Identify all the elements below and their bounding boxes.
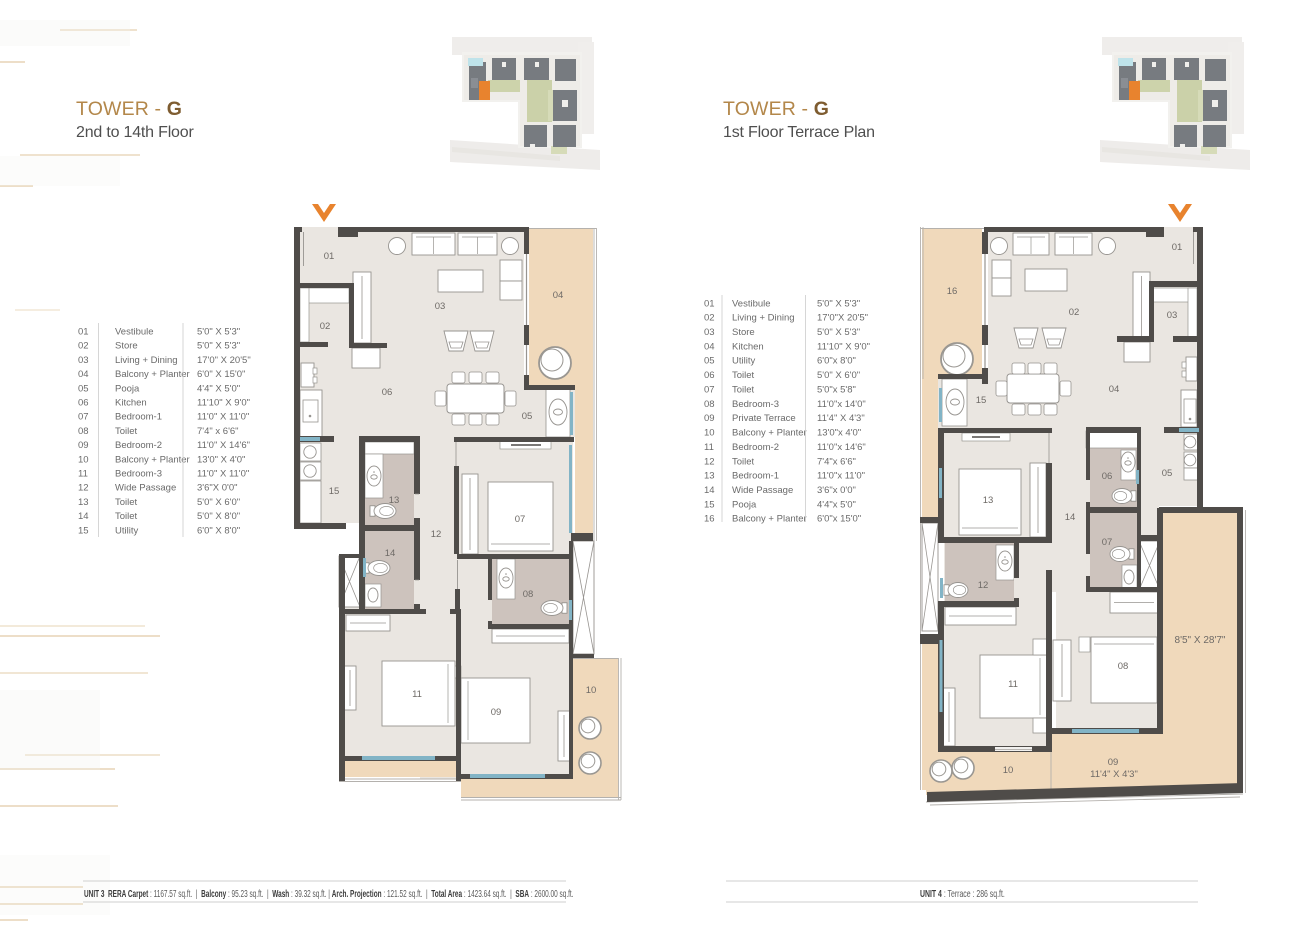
svg-text:14: 14 — [385, 548, 396, 559]
svg-text:07: 07 — [704, 384, 715, 395]
svg-text:Toilet: Toilet — [115, 511, 138, 522]
svg-text:11'0"x 14'0": 11'0"x 14'0" — [817, 399, 866, 410]
svg-text:Bedroom-2: Bedroom-2 — [115, 440, 162, 451]
svg-text:Bedroom-1: Bedroom-1 — [732, 471, 779, 482]
svg-text:16: 16 — [947, 286, 958, 297]
svg-text:06: 06 — [704, 370, 715, 381]
svg-text:01: 01 — [704, 298, 715, 309]
svg-text:Wide Passage: Wide Passage — [732, 485, 793, 496]
svg-text:05: 05 — [78, 383, 89, 394]
svg-text:11'4" X 4'3": 11'4" X 4'3" — [1090, 769, 1138, 780]
svg-text:15: 15 — [78, 525, 89, 536]
svg-text:UNIT 4 : Terrace : 286 sq.ft.: UNIT 4 : Terrace : 286 sq.ft. — [920, 888, 1005, 900]
svg-text:03: 03 — [704, 327, 715, 338]
svg-text:Store: Store — [732, 327, 755, 338]
svg-text:Pooja: Pooja — [115, 383, 140, 394]
svg-text:05: 05 — [522, 411, 533, 422]
svg-text:Pooja: Pooja — [732, 499, 757, 510]
svg-text:17'0"X 20'5": 17'0"X 20'5" — [817, 313, 868, 324]
svg-text:Bedroom-3: Bedroom-3 — [115, 469, 162, 480]
svg-text:13: 13 — [983, 495, 994, 506]
svg-text:Kitchen: Kitchen — [115, 398, 147, 409]
svg-text:2nd to 14th Floor: 2nd to 14th Floor — [76, 124, 194, 141]
svg-text:Toilet: Toilet — [732, 456, 755, 467]
svg-text:5'0" X 6'0": 5'0" X 6'0" — [197, 497, 240, 508]
svg-text:11: 11 — [412, 689, 422, 700]
svg-text:5'0" X 6'0": 5'0" X 6'0" — [817, 370, 860, 381]
svg-text:06: 06 — [1102, 471, 1113, 482]
svg-text:Balcony + Planter: Balcony + Planter — [115, 369, 190, 380]
svg-text:07: 07 — [78, 412, 89, 423]
svg-text:Utility: Utility — [115, 525, 138, 536]
svg-text:13: 13 — [704, 471, 715, 482]
svg-text:13: 13 — [389, 495, 400, 506]
svg-text:15: 15 — [976, 395, 987, 406]
svg-text:01: 01 — [1172, 242, 1183, 253]
svg-text:10: 10 — [704, 428, 715, 439]
svg-text:15: 15 — [704, 499, 715, 510]
svg-text:10: 10 — [586, 685, 597, 696]
svg-text:11'0"x 11'0": 11'0"x 11'0" — [817, 471, 865, 482]
svg-text:13'0"x 4'0": 13'0"x 4'0" — [817, 428, 861, 439]
svg-text:12: 12 — [431, 529, 442, 540]
svg-text:5'0" X 5'3": 5'0" X 5'3" — [197, 341, 240, 352]
svg-text:6'0"x 15'0": 6'0"x 15'0" — [817, 514, 861, 525]
svg-text:08: 08 — [523, 589, 534, 600]
svg-text:04: 04 — [78, 369, 89, 380]
svg-text:7'4" x 6'6": 7'4" x 6'6" — [197, 426, 239, 437]
svg-text:08: 08 — [704, 399, 715, 410]
svg-text:11'0"x 14'6": 11'0"x 14'6" — [817, 442, 866, 453]
svg-text:13'0" X 4'0": 13'0" X 4'0" — [197, 454, 245, 465]
svg-text:07: 07 — [1102, 537, 1113, 548]
svg-text:04: 04 — [553, 290, 564, 301]
svg-text:4'4" X 5'0": 4'4" X 5'0" — [197, 383, 240, 394]
svg-text:02: 02 — [78, 341, 89, 352]
svg-text:17'0" X 20'5": 17'0" X 20'5" — [197, 355, 251, 366]
svg-text:02: 02 — [1069, 307, 1080, 318]
svg-text:02: 02 — [704, 313, 715, 324]
svg-text:05: 05 — [704, 356, 715, 367]
svg-text:5'0" X 5'3": 5'0" X 5'3" — [817, 327, 860, 338]
svg-text:06: 06 — [78, 398, 89, 409]
svg-text:04: 04 — [704, 341, 715, 352]
svg-text:08: 08 — [78, 426, 89, 437]
svg-text:03: 03 — [435, 301, 446, 312]
svg-text:07: 07 — [515, 514, 526, 525]
svg-text:09: 09 — [1108, 757, 1119, 768]
svg-text:Balcony + Planter: Balcony + Planter — [732, 428, 807, 439]
svg-text:14: 14 — [1065, 512, 1076, 523]
svg-text:11'10" X 9'0": 11'10" X 9'0" — [197, 398, 250, 409]
svg-text:Toilet: Toilet — [732, 370, 755, 381]
svg-text:06: 06 — [382, 387, 393, 398]
svg-text:Balcony + Planter: Balcony + Planter — [732, 514, 807, 525]
svg-text:11: 11 — [1008, 679, 1018, 690]
svg-text:11'0" X 14'6": 11'0" X 14'6" — [197, 440, 250, 451]
svg-text:01: 01 — [78, 327, 89, 338]
svg-text:09: 09 — [78, 440, 89, 451]
svg-text:14: 14 — [78, 511, 89, 522]
svg-text:11: 11 — [704, 442, 714, 453]
svg-text:03: 03 — [78, 355, 89, 366]
svg-text:3'6"X 0'0": 3'6"X 0'0" — [197, 483, 237, 494]
svg-text:6'0" X 15'0": 6'0" X 15'0" — [197, 369, 245, 380]
svg-text:05: 05 — [1162, 468, 1173, 479]
svg-text:16: 16 — [704, 514, 715, 525]
svg-text:UNIT 3 RERA Carpet : 1167.57: UNIT 3 RERA Carpet : 1167.57 sq.ft. | Ba… — [84, 887, 573, 899]
svg-text:Kitchen: Kitchen — [732, 341, 764, 352]
svg-text:Vestibule: Vestibule — [115, 327, 154, 338]
svg-text:Private Terrace: Private Terrace — [732, 413, 796, 424]
svg-text:Toilet: Toilet — [115, 426, 138, 437]
svg-text:3'6"x 0'0": 3'6"x 0'0" — [817, 485, 856, 496]
svg-text:Bedroom-2: Bedroom-2 — [732, 442, 779, 453]
svg-text:6'0"x 8'0": 6'0"x 8'0" — [817, 356, 856, 367]
svg-text:12: 12 — [704, 456, 715, 467]
svg-text:12: 12 — [978, 580, 989, 591]
svg-text:5'0" X 8'0": 5'0" X 8'0" — [197, 511, 240, 522]
svg-text:11'4" X 4'3": 11'4" X 4'3" — [817, 413, 865, 424]
svg-text:12: 12 — [78, 483, 89, 494]
svg-text:11'0" X 11'0": 11'0" X 11'0" — [197, 412, 249, 423]
svg-text:Bedroom-1: Bedroom-1 — [115, 412, 162, 423]
svg-text:09: 09 — [491, 707, 502, 718]
svg-text:Toilet: Toilet — [732, 384, 755, 395]
svg-text:13: 13 — [78, 497, 89, 508]
svg-text:04: 04 — [1109, 384, 1120, 395]
svg-text:5'0"x 5'8": 5'0"x 5'8" — [817, 384, 856, 395]
svg-text:Store: Store — [115, 341, 138, 352]
svg-text:03: 03 — [1167, 310, 1178, 321]
svg-text:8'5" X 28'7": 8'5" X 28'7" — [1175, 635, 1226, 646]
svg-text:TOWER - G: TOWER - G — [76, 98, 182, 120]
svg-text:5'0" X 5'3": 5'0" X 5'3" — [197, 327, 240, 338]
svg-text:09: 09 — [704, 413, 715, 424]
svg-text:4'4"x 5'0": 4'4"x 5'0" — [817, 499, 856, 510]
svg-text:6'0" X 8'0": 6'0" X 8'0" — [197, 525, 240, 536]
svg-text:Utility: Utility — [732, 356, 755, 367]
svg-text:11'10" X 9'0": 11'10" X 9'0" — [817, 341, 870, 352]
svg-text:10: 10 — [1003, 765, 1014, 776]
svg-text:5'0" X 5'3": 5'0" X 5'3" — [817, 298, 860, 309]
svg-text:Living + Dining: Living + Dining — [115, 355, 178, 366]
svg-text:11'0" X 11'0": 11'0" X 11'0" — [197, 469, 249, 480]
svg-text:Living + Dining: Living + Dining — [732, 313, 795, 324]
svg-text:15: 15 — [329, 486, 340, 497]
svg-text:7'4"x 6'6": 7'4"x 6'6" — [817, 456, 856, 467]
svg-text:11: 11 — [78, 469, 88, 480]
svg-text:TOWER - G: TOWER - G — [723, 98, 829, 120]
svg-text:Balcony + Planter: Balcony + Planter — [115, 454, 190, 465]
svg-text:Wide Passage: Wide Passage — [115, 483, 176, 494]
svg-text:1st Floor Terrace Plan: 1st Floor Terrace Plan — [723, 124, 875, 141]
svg-text:10: 10 — [78, 454, 89, 465]
svg-text:01: 01 — [324, 251, 335, 262]
svg-text:02: 02 — [320, 321, 331, 332]
svg-text:14: 14 — [704, 485, 715, 496]
svg-text:Vestibule: Vestibule — [732, 298, 771, 309]
svg-text:Toilet: Toilet — [115, 497, 138, 508]
svg-text:Bedroom-3: Bedroom-3 — [732, 399, 779, 410]
svg-text:08: 08 — [1118, 661, 1129, 672]
